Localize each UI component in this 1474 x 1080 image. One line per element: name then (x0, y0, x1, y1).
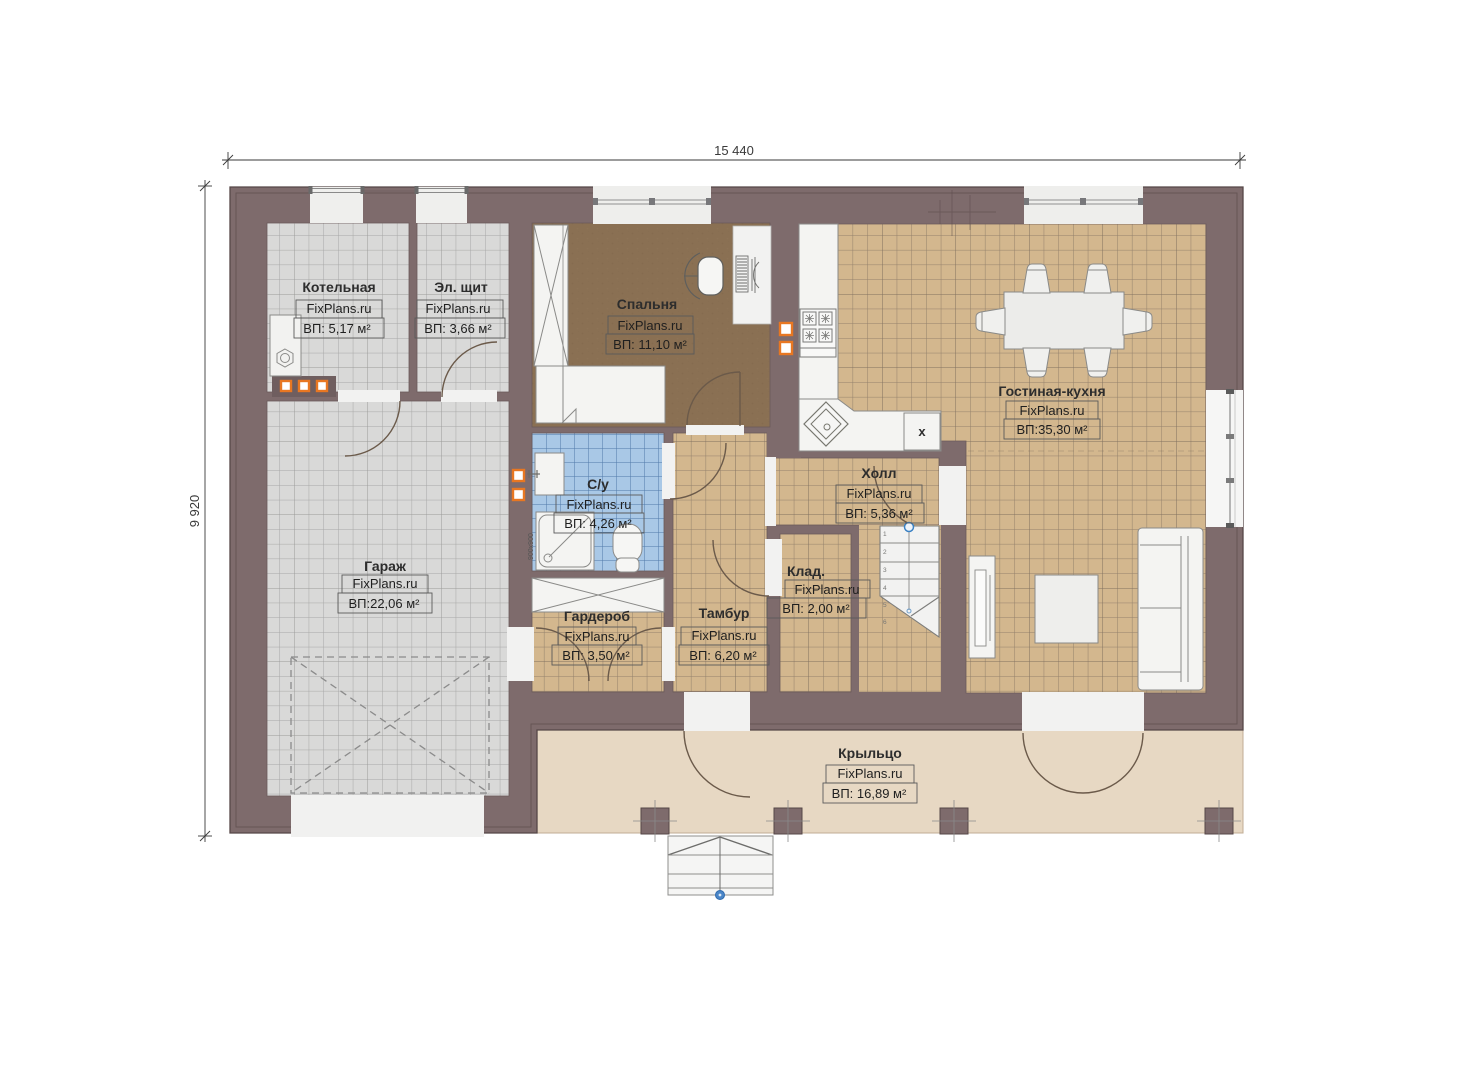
svg-text:x: x (918, 424, 926, 439)
svg-text:FixPlans.ru: FixPlans.ru (306, 301, 371, 316)
svg-text:ВП: 3,66 м²: ВП: 3,66 м² (424, 321, 492, 336)
svg-text:15 440: 15 440 (714, 143, 754, 158)
svg-text:Гостиная-кухня: Гостиная-кухня (998, 383, 1105, 399)
svg-text:900х900: 900х900 (528, 533, 535, 560)
svg-text:FixPlans.ru: FixPlans.ru (564, 629, 629, 644)
svg-text:2: 2 (883, 549, 887, 556)
svg-text:ВП: 5,36 м²: ВП: 5,36 м² (845, 506, 913, 521)
svg-text:ВП: 11,10 м²: ВП: 11,10 м² (613, 337, 687, 352)
svg-text:Крыльцо: Крыльцо (838, 745, 902, 761)
svg-text:FixPlans.ru: FixPlans.ru (691, 628, 756, 643)
svg-text:3: 3 (883, 567, 887, 574)
svg-text:ВП: 6,20 м²: ВП: 6,20 м² (689, 648, 757, 663)
svg-text:FixPlans.ru: FixPlans.ru (566, 497, 631, 512)
svg-text:9 920: 9 920 (187, 495, 202, 528)
svg-text:ВП: 3,50 м²: ВП: 3,50 м² (562, 648, 630, 663)
svg-text:FixPlans.ru: FixPlans.ru (794, 582, 859, 597)
svg-text:FixPlans.ru: FixPlans.ru (1019, 403, 1084, 418)
svg-text:5: 5 (883, 602, 887, 609)
svg-text:6: 6 (883, 619, 887, 626)
svg-text:1: 1 (883, 531, 887, 538)
svg-text:FixPlans.ru: FixPlans.ru (425, 301, 490, 316)
svg-text:Клад.: Клад. (787, 563, 825, 579)
svg-text:Холл: Холл (861, 465, 896, 481)
svg-text:Гараж: Гараж (364, 558, 407, 574)
svg-text:ВП: 16,89 м²: ВП: 16,89 м² (832, 786, 907, 801)
svg-text:Котельная: Котельная (302, 279, 375, 295)
svg-text:ВП: 4,26 м²: ВП: 4,26 м² (564, 516, 632, 531)
svg-text:Тамбур: Тамбур (699, 605, 750, 621)
svg-text:ВП:35,30 м²: ВП:35,30 м² (1016, 422, 1088, 437)
svg-text:ВП: 5,17 м²: ВП: 5,17 м² (303, 321, 371, 336)
svg-text:FixPlans.ru: FixPlans.ru (617, 318, 682, 333)
svg-text:4: 4 (883, 585, 887, 592)
svg-text:ВП:22,06 м²: ВП:22,06 м² (348, 596, 420, 611)
svg-text:Гардероб: Гардероб (564, 608, 631, 624)
svg-text:С/у: С/у (587, 476, 609, 492)
svg-text:FixPlans.ru: FixPlans.ru (837, 766, 902, 781)
svg-text:FixPlans.ru: FixPlans.ru (846, 486, 911, 501)
svg-text:FixPlans.ru: FixPlans.ru (352, 576, 417, 591)
svg-text:ВП: 2,00 м²: ВП: 2,00 м² (782, 601, 850, 616)
svg-text:Спальня: Спальня (617, 296, 677, 312)
svg-text:Эл. щит: Эл. щит (434, 279, 488, 295)
